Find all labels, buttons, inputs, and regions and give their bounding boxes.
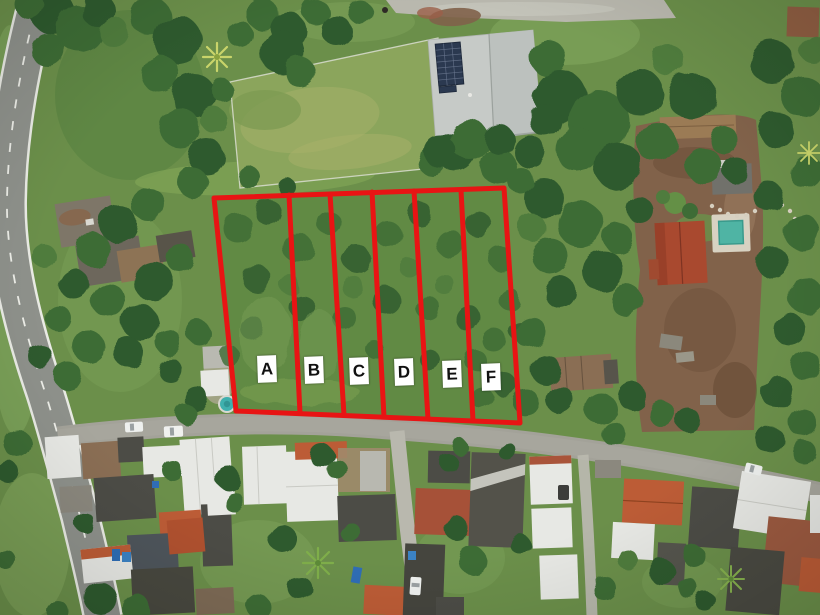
plot-label-b: B	[304, 356, 324, 384]
plot-label-d: D	[394, 358, 414, 386]
plot-label-e: E	[442, 360, 462, 388]
aerial-photo: A B C D E F	[0, 0, 820, 615]
plot-label-f: F	[481, 363, 501, 391]
vignette	[0, 0, 820, 615]
plot-label-c: C	[349, 357, 369, 385]
aerial-scene	[0, 0, 820, 615]
plot-label-a: A	[257, 355, 277, 383]
